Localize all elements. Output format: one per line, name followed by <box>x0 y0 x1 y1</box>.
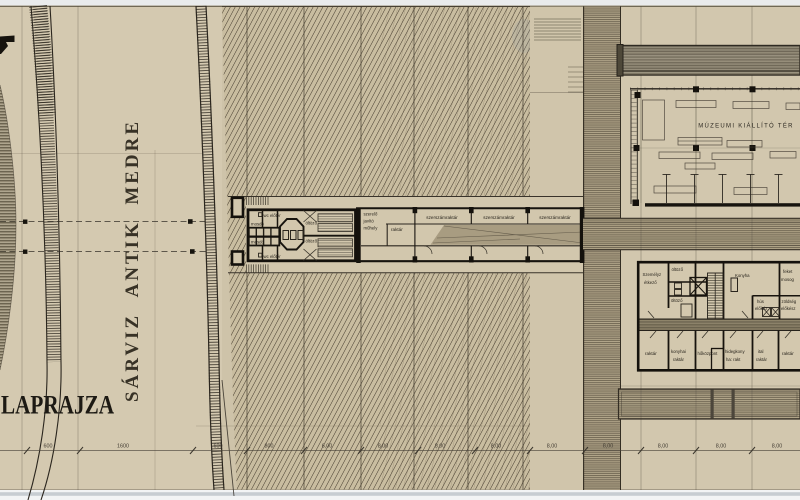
svg-text:8,00: 8,00 <box>772 444 783 450</box>
svg-text:szerszámraktár: szerszámraktár <box>483 215 515 220</box>
svg-text:mosog: mosog <box>781 277 795 282</box>
svg-text:MÚZEUMI KIÁLLÍTÓ TÉR: MÚZEUMI KIÁLLÍTÓ TÉR <box>698 123 794 130</box>
svg-text:600: 600 <box>44 444 53 450</box>
svg-text:javító: javító <box>363 219 375 224</box>
svg-text:mosdó: mosdó <box>251 240 265 245</box>
svg-text:8,00: 8,00 <box>716 444 727 450</box>
svg-text:feket: feket <box>783 269 793 274</box>
svg-text:raktár: raktár <box>645 351 657 356</box>
svg-text:8,00: 8,00 <box>378 444 389 450</box>
svg-text:műhely: műhely <box>364 226 379 231</box>
svg-text:SÁRVIZ ANTIK MEDRE: SÁRVIZ ANTIK MEDRE <box>121 119 143 402</box>
svg-text:mosdó: mosdó <box>251 222 265 227</box>
svg-text:hidegkony: hidegkony <box>725 349 745 354</box>
svg-text:8,00: 8,00 <box>603 444 614 450</box>
svg-text:6,00: 6,00 <box>322 444 333 450</box>
svg-text:wc előtér: wc előtér <box>264 254 282 259</box>
svg-text:öltöző: öltöző <box>671 298 683 303</box>
svg-text:wc előtér: wc előtér <box>264 213 282 218</box>
svg-text:előkész: előkész <box>781 306 796 311</box>
svg-text:600: 600 <box>214 444 223 450</box>
svg-text:öltöző: öltöző <box>672 267 684 272</box>
svg-text:Személyz: Személyz <box>643 272 662 277</box>
svg-text:raktár: raktár <box>673 357 685 362</box>
svg-text:hús: hús <box>757 299 764 304</box>
svg-text:zöldség: zöldség <box>782 299 797 304</box>
svg-text:8,00: 8,00 <box>435 444 446 450</box>
svg-text:8,00: 8,00 <box>491 444 502 450</box>
svg-text:raktár: raktár <box>391 227 403 232</box>
svg-text:800: 800 <box>265 444 274 450</box>
svg-text:8,00: 8,00 <box>658 444 669 450</box>
svg-text:előkéz: előkéz <box>755 306 767 311</box>
svg-text:1600: 1600 <box>117 444 129 450</box>
svg-text:Konyha: Konyha <box>735 273 750 278</box>
svg-text:8,00: 8,00 <box>547 444 558 450</box>
svg-text:ital: ital <box>758 349 764 354</box>
svg-text:konyhai: konyhai <box>671 349 686 354</box>
svg-text:raktár: raktár <box>782 351 794 356</box>
svg-text:LAPRAJZA: LAPRAJZA <box>1 390 114 420</box>
svg-text:öltöző: öltöző <box>306 239 318 244</box>
svg-text:hőközpont: hőközpont <box>698 351 719 356</box>
svg-text:szerelő: szerelő <box>364 212 378 217</box>
svg-text:öltöző: öltöző <box>306 221 318 226</box>
svg-text:szerszámraktár: szerszámraktár <box>539 215 571 220</box>
svg-text:raktár: raktár <box>756 357 768 362</box>
svg-text:ha: rakt: ha: rakt <box>726 357 741 362</box>
svg-text:étkező: étkező <box>644 280 657 285</box>
svg-text:szerszámraktár: szerszámraktár <box>426 215 458 220</box>
